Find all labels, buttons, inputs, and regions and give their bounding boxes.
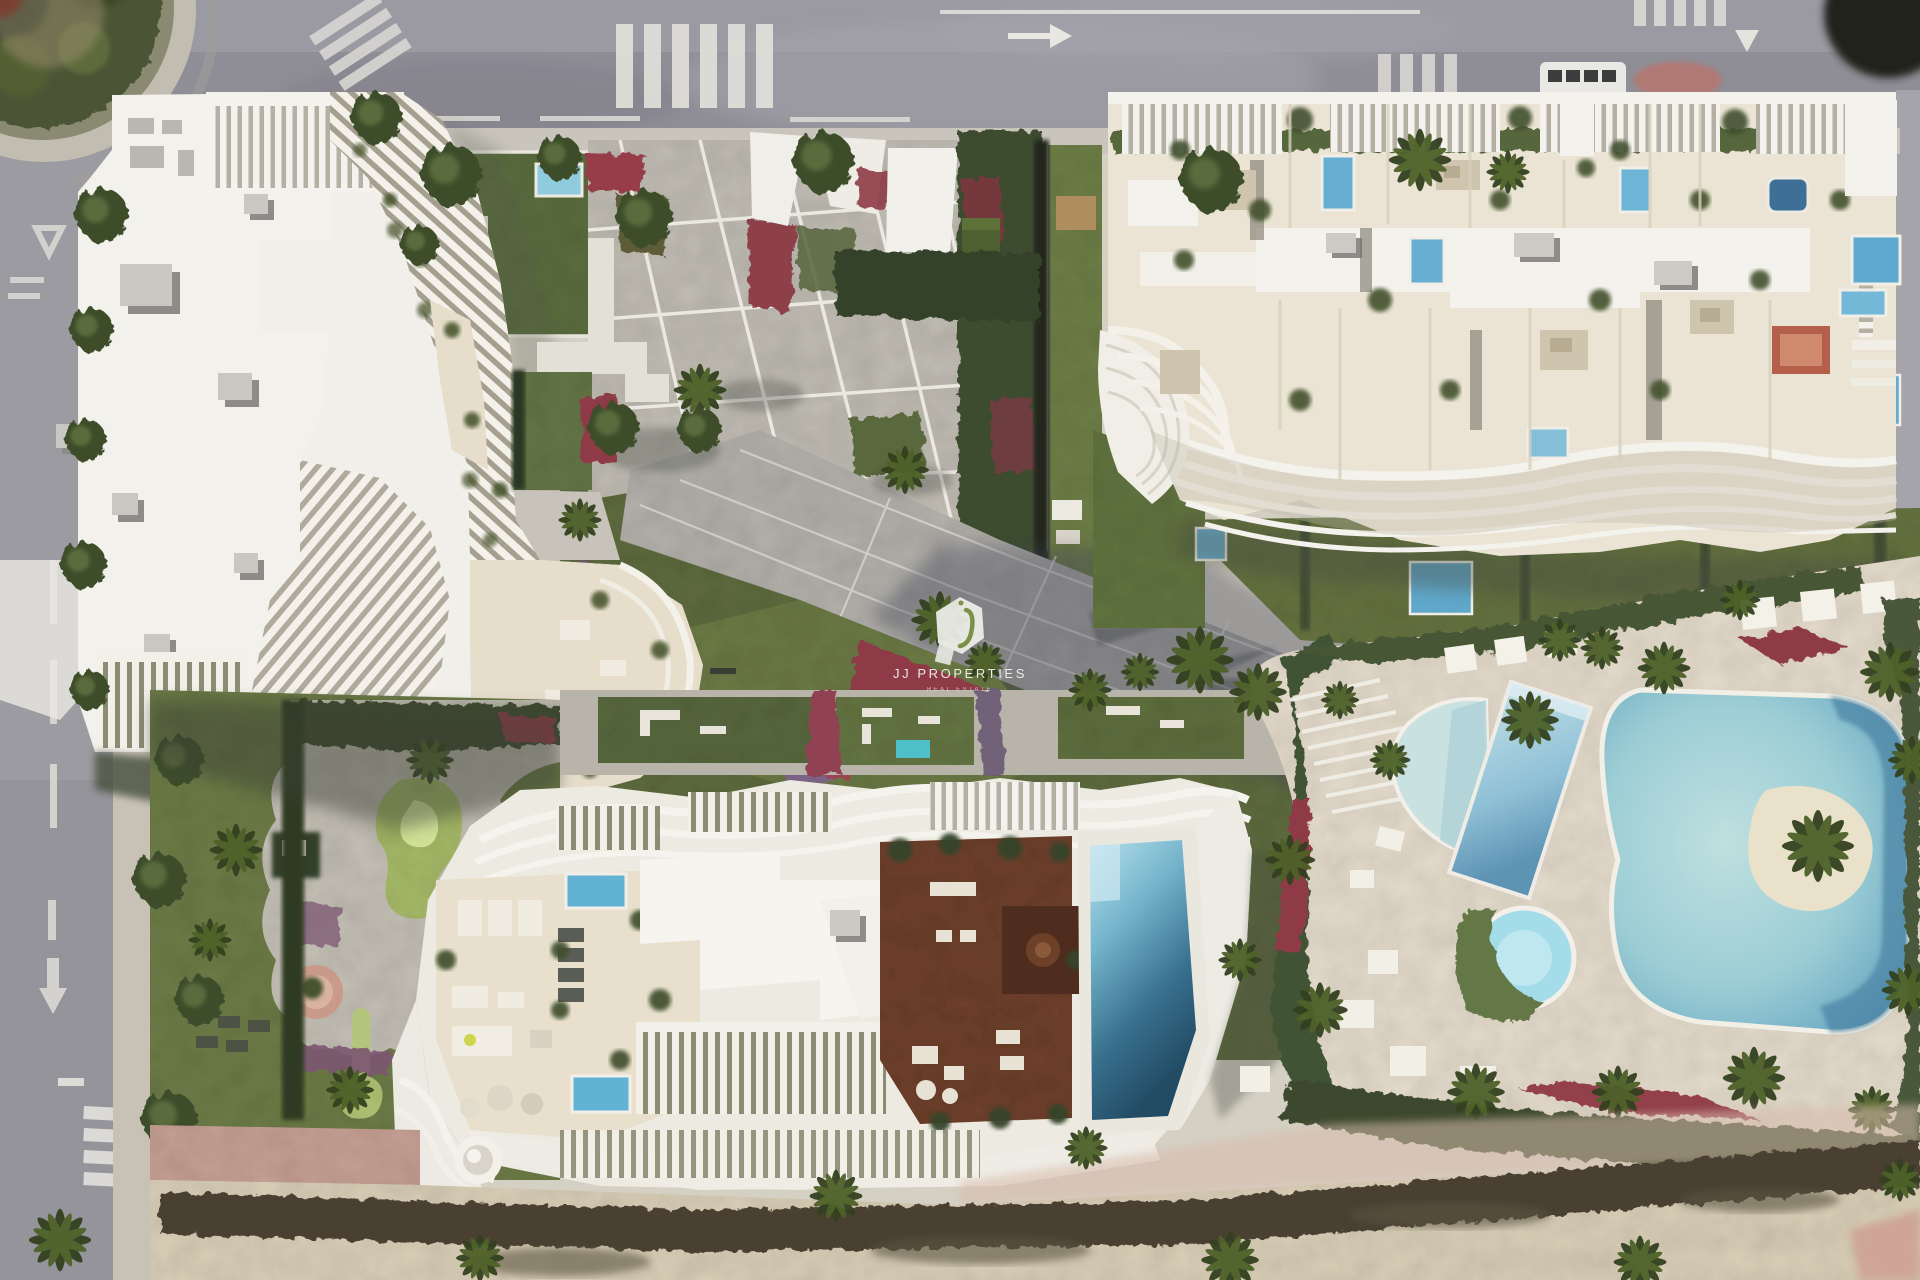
svg-text:JJ PROPERTIES: JJ PROPERTIES	[893, 666, 1027, 681]
svg-text:REAL ESTATE: REAL ESTATE	[927, 687, 993, 693]
